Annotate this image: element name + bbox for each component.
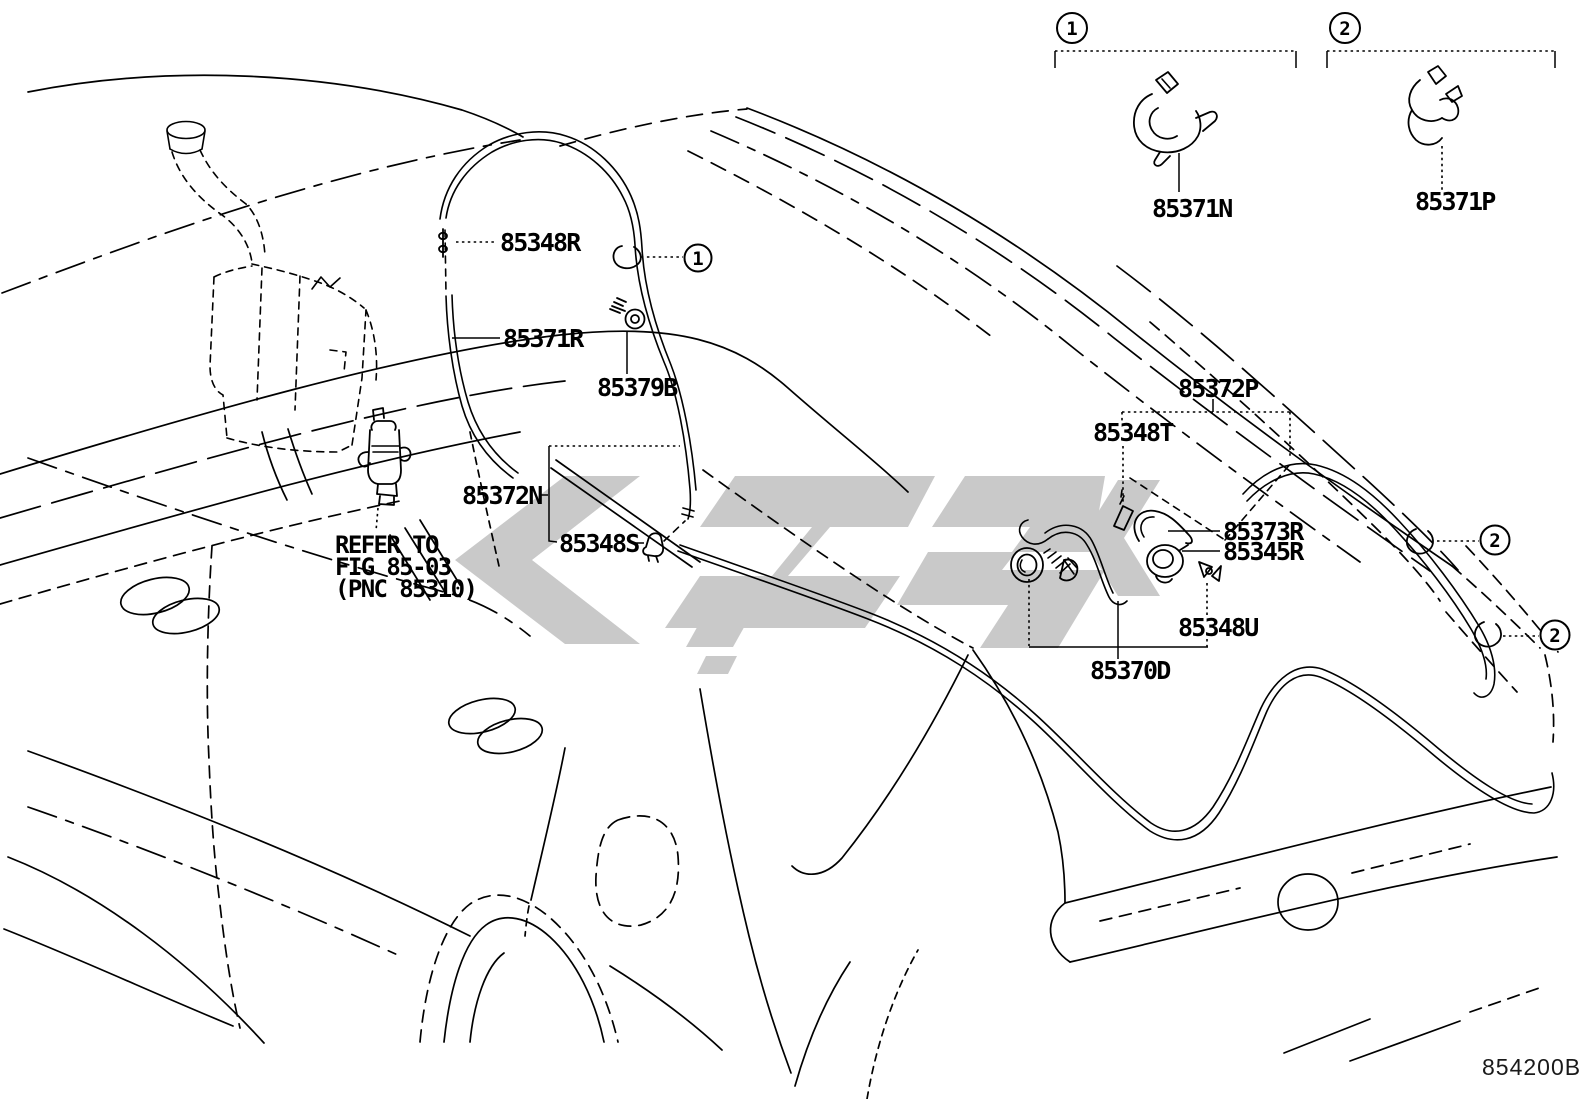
roof-front-edge <box>28 75 523 137</box>
emblem-hole <box>1278 874 1338 930</box>
right-hose-arc <box>1243 464 1495 698</box>
part-label-85348R[interactable]: 85348R <box>500 228 582 257</box>
fuel-door <box>596 816 679 926</box>
part-label-85371P[interactable]: 85371P <box>1415 187 1495 216</box>
garnish-band-lower <box>1070 857 1557 962</box>
watermark-logo <box>455 476 1160 674</box>
body-crease <box>28 751 470 936</box>
leader-refer-note <box>376 508 378 531</box>
callout-2-number: 2 <box>1339 18 1350 40</box>
tail-pillar-edge <box>973 650 1065 903</box>
pillar-hose <box>452 295 518 473</box>
part-label-85348S[interactable]: 85348S <box>559 529 639 558</box>
part-label-85345R[interactable]: 85345R <box>1223 537 1305 566</box>
roof-hose <box>440 132 696 490</box>
callout-2-number: 2 <box>1489 530 1500 552</box>
hook-tube-icon-85373R <box>1134 511 1192 544</box>
roof-side-rail <box>0 331 908 492</box>
roof-rear-edge-inner <box>688 151 992 337</box>
door-handle-front <box>117 571 223 640</box>
roof-clip-mark <box>312 277 340 289</box>
screw-grommet-icon-85379B <box>610 298 645 329</box>
callout-1-mid[interactable]: 1 <box>685 245 712 272</box>
hatch-opening-edge <box>792 655 968 874</box>
hose-joint-ticks <box>682 508 694 517</box>
wheel-arch-inner <box>470 953 504 1042</box>
fender-line <box>610 966 722 1050</box>
garnish-band-upper <box>1065 787 1551 903</box>
bumper-line <box>1284 1019 1370 1053</box>
roof-clip-icon-85371N <box>1134 72 1217 166</box>
drip-rail-line <box>2 140 520 293</box>
part-labels: 85348R 85371R 85379B 85372N 85348S 85372… <box>462 187 1495 685</box>
clip-icon-85348U <box>1199 562 1221 581</box>
callout-1-top[interactable]: 1 <box>1057 13 1087 43</box>
parts-diagram-canvas: 1 1 2 2 2 85348R 85371R 85379B 85372N 85… <box>0 0 1592 1099</box>
hose-clamp-icon-2a <box>1407 529 1433 554</box>
bumper-line <box>1350 1021 1460 1061</box>
callout-2-right-lower[interactable]: 2 <box>1541 621 1570 650</box>
figure-code: 854200B <box>1482 1054 1581 1080</box>
garnish-band-dash <box>1100 888 1240 921</box>
part-label-85372N[interactable]: 85372N <box>462 481 542 510</box>
part-label-85379B[interactable]: 85379B <box>597 373 678 402</box>
part-label-85370D[interactable]: 85370D <box>1090 656 1170 685</box>
part-label-85371R[interactable]: 85371R <box>503 324 585 353</box>
body-crease <box>28 807 400 956</box>
hatch-bottom-line <box>867 950 918 1099</box>
roof-side-rail <box>0 432 520 565</box>
garnish-band-dash <box>1352 844 1470 873</box>
elbow-joint-icon-85348S <box>643 533 663 562</box>
door-handle-rear <box>445 692 546 759</box>
roof-clip-icon-85371P <box>1409 66 1462 145</box>
part-label-85371N[interactable]: 85371N <box>1152 194 1232 223</box>
c-pillar-edge <box>531 748 565 900</box>
garnish-band-point <box>1051 903 1070 962</box>
rear-door-edge <box>207 546 240 1028</box>
reference-note: REFER TO FIG 85-03 (PNC 85310) <box>335 531 476 603</box>
note-line-3: (PNC 85310) <box>335 575 476 603</box>
wheel-arch-inner <box>444 918 604 1042</box>
rear-washer-diagram: 1 1 2 2 2 85348R 85371R 85379B 85372N 85… <box>0 0 1592 1099</box>
callout-1-number: 1 <box>1066 18 1077 40</box>
bumper-line <box>1470 986 1545 1012</box>
callout-1-number: 1 <box>692 248 703 270</box>
part-label-85372P[interactable]: 85372P <box>1178 374 1258 403</box>
callout-2-top[interactable]: 2 <box>1330 13 1360 43</box>
quarter-crease <box>700 689 791 1073</box>
bracket-tick <box>1055 51 1296 68</box>
wheel-arch-outer <box>420 895 618 1042</box>
callout-2-number: 2 <box>1549 625 1560 647</box>
grommet-icon-85345R <box>1147 545 1188 583</box>
watermark-fragment <box>697 656 737 674</box>
part-label-85348U[interactable]: 85348U <box>1178 613 1258 642</box>
roof-top-line <box>560 109 747 146</box>
washer-reservoir <box>167 122 377 453</box>
part-label-85348T[interactable]: 85348T <box>1093 418 1173 447</box>
hatch-bottom-line <box>795 962 850 1086</box>
joint-dash <box>664 521 685 541</box>
right-hose-arc <box>1247 473 1486 679</box>
bracket-tick <box>1327 51 1555 68</box>
callout-2-right-upper[interactable]: 2 <box>1481 526 1510 555</box>
d-pillar-tail <box>1545 655 1554 742</box>
